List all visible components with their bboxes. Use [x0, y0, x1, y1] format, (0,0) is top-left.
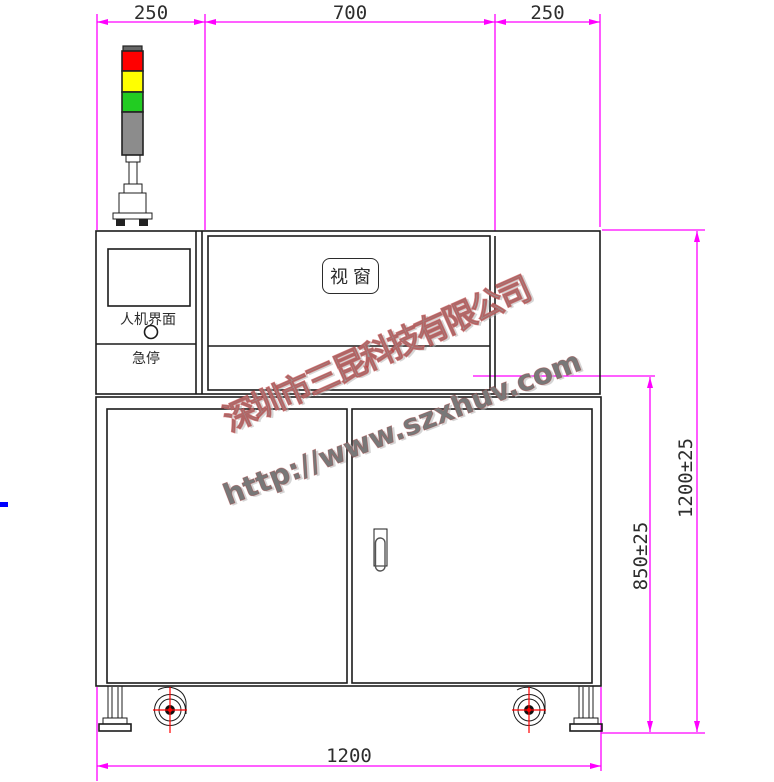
dim-top-left: 250 [97, 2, 205, 24]
signal-tower-light [113, 46, 152, 226]
dim-right-outer: 1200±25 [675, 438, 697, 518]
tower-mount-foot [139, 219, 148, 226]
dim-right-inner: 850±25 [630, 522, 652, 591]
viewing-window-label: 视窗 [322, 258, 379, 294]
dim-bottom: 1200 [97, 745, 601, 767]
caster-wheel-right [512, 687, 546, 733]
leveling-foot-right [570, 686, 602, 731]
dim-top-right: 250 [495, 2, 600, 24]
cad-drawing-canvas: 250 700 250 1200 1200±25 850±25 视窗 人机界面 … [0, 0, 774, 782]
dim-top-mid: 700 [205, 2, 495, 24]
cabinet-left-door [107, 409, 347, 683]
caster-wheel-left [153, 687, 187, 733]
leveling-foot-left [99, 686, 131, 731]
drawing-linework [0, 0, 774, 782]
tower-mount-foot [116, 219, 125, 226]
estop-label: 急停 [96, 348, 196, 368]
tower-green-lamp [122, 92, 143, 112]
tower-yellow-lamp [122, 71, 143, 92]
hmi-screen [108, 249, 190, 306]
tower-body [122, 112, 143, 155]
left-edge-blue-mark [0, 502, 8, 507]
hmi-label: 人机界面 [98, 309, 198, 329]
machine-cabinet [96, 397, 601, 686]
cabinet-right-door [352, 409, 592, 683]
tower-red-lamp [122, 51, 143, 71]
